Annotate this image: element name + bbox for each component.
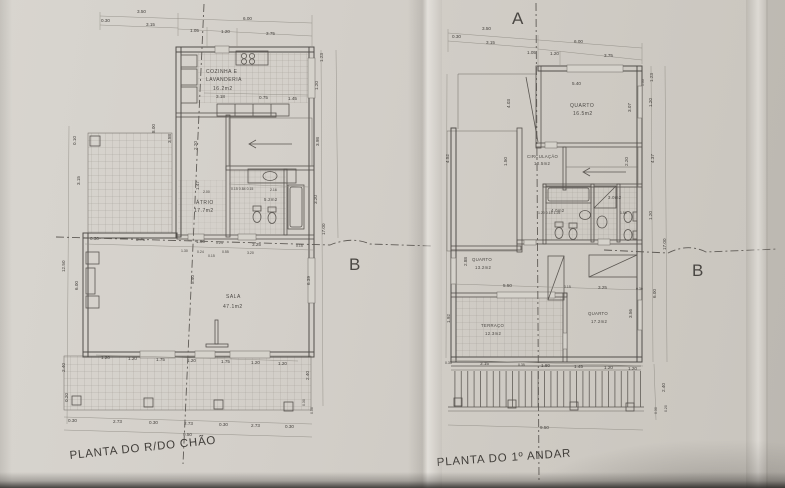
dim-label: 0.30	[68, 418, 77, 423]
dim-label: 2.16	[270, 188, 277, 192]
dim-label: 1.20	[314, 81, 319, 90]
appliance	[181, 69, 197, 85]
room-area-atrio: 17.7m2	[194, 208, 214, 214]
room-area-wc: 3.0m2	[608, 195, 622, 200]
dim-label: 1.92	[446, 314, 451, 323]
dim-label: 3.07	[627, 103, 632, 112]
window	[308, 58, 315, 98]
dim-label: 5.40	[572, 81, 581, 86]
window	[497, 292, 555, 298]
room-area-terrace: 12.3m2	[485, 331, 501, 336]
dim-label: 6.00	[652, 289, 657, 298]
dim-label: 9.50	[540, 425, 549, 430]
dim-label: 0.10	[72, 136, 77, 145]
plan-title-first: PLANTA DO 1º ANDAR	[436, 448, 571, 469]
window	[567, 65, 623, 72]
chimney	[86, 268, 95, 294]
dim-label: 1.23	[649, 73, 654, 82]
dim-label: 0.30	[149, 420, 158, 425]
dim-label: 3.20	[313, 195, 318, 204]
door-opening	[545, 142, 557, 148]
dim-label: 0.75	[259, 95, 268, 100]
dim-label: 1.50	[620, 211, 627, 215]
dim-label: 0.24	[197, 250, 204, 254]
dim-label: 0.20	[64, 393, 69, 402]
dim-label: 3.18	[216, 94, 225, 99]
dim-label: 6.39	[306, 276, 311, 285]
dim-label: 17.00	[662, 238, 667, 250]
door-opening	[598, 239, 610, 245]
door-opening	[215, 46, 229, 53]
room-area-bath: 4.0m2	[551, 208, 565, 213]
dim-label: 0.55	[222, 250, 229, 254]
terrace-tiles	[456, 297, 563, 357]
room-area-circulation: 10.5m2	[534, 161, 550, 166]
room-area-bedroom1: 16.5m2	[573, 111, 593, 117]
window	[230, 351, 270, 358]
dim-label: 1.20	[221, 29, 230, 34]
dim-label: 1.20	[628, 366, 637, 371]
dim-label: 3.56	[628, 309, 633, 318]
dim-label: 2.73	[184, 421, 193, 426]
dim-label: 6.00	[574, 39, 583, 44]
dim-label: 0.30	[285, 424, 294, 429]
dim-label: 0.35	[445, 361, 452, 365]
door-opening	[238, 234, 256, 240]
dim-label: 0.20	[664, 405, 668, 412]
dim-label: 3.75	[266, 31, 275, 36]
dim-label: 1.20	[128, 356, 137, 361]
dim-label: 1.05	[527, 50, 536, 55]
room-label-atrio: ÁTRIO	[196, 199, 214, 206]
dim-label: 3.15	[146, 22, 155, 27]
dim-label: 1.05	[190, 28, 199, 33]
section-marker-b: B	[692, 261, 703, 280]
dim-label: 0.30	[636, 287, 643, 291]
section-line-a	[536, 3, 539, 480]
door-opening	[195, 351, 215, 358]
dim-label: 1.45	[288, 96, 297, 101]
dim-label: 0.15 0.84 0.15	[231, 187, 253, 191]
dim-label: 4.52	[445, 154, 450, 163]
dim-label: 1.50	[503, 157, 508, 166]
room-label-sala: SALA	[226, 294, 241, 300]
dim-label: 4.37	[650, 154, 655, 163]
dim-label: 0.30	[654, 407, 658, 414]
door-opening	[524, 240, 536, 245]
dim-label: 0.50	[310, 407, 314, 414]
dim-label: 3.15	[76, 176, 81, 185]
dim-label: 6.00	[243, 16, 252, 21]
dim-label: 2.40	[305, 371, 310, 380]
dim-label: 1.20	[648, 211, 653, 220]
dim-label: 1.20	[251, 360, 260, 365]
dim-label: 17.00	[321, 223, 326, 235]
section-line-b-first	[604, 248, 778, 253]
room-label-terrace: TERRAÇO	[481, 323, 504, 328]
ground-stairs	[229, 118, 312, 166]
door-opening	[563, 333, 567, 349]
floor-plans-drawing: 3.50 0.30 3.15 6.00 1.05 1.20 3.75 0.10 …	[0, 0, 785, 488]
dim-label: 12.50	[61, 260, 66, 272]
dim-label: 0.15	[208, 254, 215, 258]
dim-label: 2.40	[661, 383, 666, 392]
room-area-sala: 47.1m2	[223, 304, 243, 310]
room-area-bedroom2: 13.2m2	[475, 265, 491, 270]
dim-label: 6.00	[74, 281, 79, 290]
ground-floor-plan: 3.50 0.30 3.15 6.00 1.05 1.20 3.75 0.10 …	[56, 4, 432, 464]
room-label-kitchen: COZINHA E	[206, 69, 238, 75]
dim-label: 1.20	[101, 355, 110, 360]
dim-label: 4.03	[506, 99, 511, 108]
window	[638, 300, 642, 330]
dim-label: 3.98	[315, 137, 320, 146]
window	[451, 258, 456, 284]
dim-label: 2.73	[113, 419, 122, 424]
dim-label: 2.20	[624, 157, 629, 166]
dim-label: 1.33	[641, 79, 645, 86]
dim-label: 3.58	[167, 134, 172, 143]
room-label-circulation: CIRCULAÇÃO	[527, 154, 559, 159]
dim-label: 2.40	[61, 363, 66, 372]
room-area-kitchen: 16.2m2	[213, 86, 233, 92]
window	[638, 86, 642, 118]
room-area-bedroom3: 17.2m2	[591, 319, 607, 324]
room-label-kitchen: LAVANDERIA	[206, 77, 242, 83]
dim-label: 1.20	[278, 361, 287, 366]
dim-label: 0.15	[564, 285, 571, 289]
room-label-bedroom1: QUARTO	[570, 103, 594, 109]
room-label-bedroom3: QUARTO	[588, 311, 608, 316]
dim-label: 8.00	[151, 124, 156, 133]
pergola-hatch	[447, 131, 517, 251]
first-stairs	[566, 147, 638, 187]
dim-label: 1.20	[604, 365, 613, 370]
appliance	[181, 55, 197, 67]
dim-label: 3.75	[604, 53, 613, 58]
dim-label: 1.80	[541, 363, 550, 368]
section-marker-a: A	[512, 9, 524, 28]
dim-label: 0.30	[101, 18, 110, 23]
plan-title-ground: PLANTA DO R/DO CHÃO	[69, 434, 217, 462]
dim-label: 3.50	[137, 9, 146, 14]
dim-label: 1.45	[574, 364, 583, 369]
scanned-drawing-sheet: 3.50 0.30 3.15 6.00 1.05 1.20 3.75 0.10 …	[0, 0, 785, 488]
dim-label: 3.50	[482, 26, 491, 31]
dim-label: 1.23	[319, 53, 324, 62]
first-floor-plan: 3.50 0.30 3.15 6.00 1.05 1.20 3.75 1.23 …	[436, 3, 778, 480]
dim-label: 3.20	[247, 251, 254, 255]
dim-label: 1.75	[221, 359, 230, 364]
dim-label: 0.30	[302, 399, 306, 406]
dim-label: 1.20	[187, 358, 196, 363]
dim-label: 1.75	[156, 357, 165, 362]
section-marker-b: B	[349, 255, 360, 274]
dim-label: 2.88	[463, 257, 468, 266]
dim-label: 2.00	[203, 190, 210, 194]
dim-label: 5.40	[190, 275, 195, 284]
dim-label: 0.30	[219, 422, 228, 427]
dim-label: 3.15	[486, 40, 495, 45]
dim-label: 1.30	[181, 249, 188, 253]
dim-label: 3.25	[598, 285, 607, 290]
dim-label: 0.35	[518, 363, 525, 367]
dim-label: 2.73	[251, 423, 260, 428]
dim-label: 0.30	[452, 34, 461, 39]
room-label-bedroom2: QUARTO	[472, 257, 492, 262]
dim-label: 3.15	[480, 361, 489, 366]
dim-label: 5.50	[503, 283, 512, 288]
dim-label: 1.20	[648, 98, 653, 107]
balcony-railing	[448, 366, 644, 411]
room-area-bath: 5.2m2	[264, 197, 278, 202]
appliance	[181, 87, 197, 103]
dim-label: 1.20	[550, 51, 559, 56]
